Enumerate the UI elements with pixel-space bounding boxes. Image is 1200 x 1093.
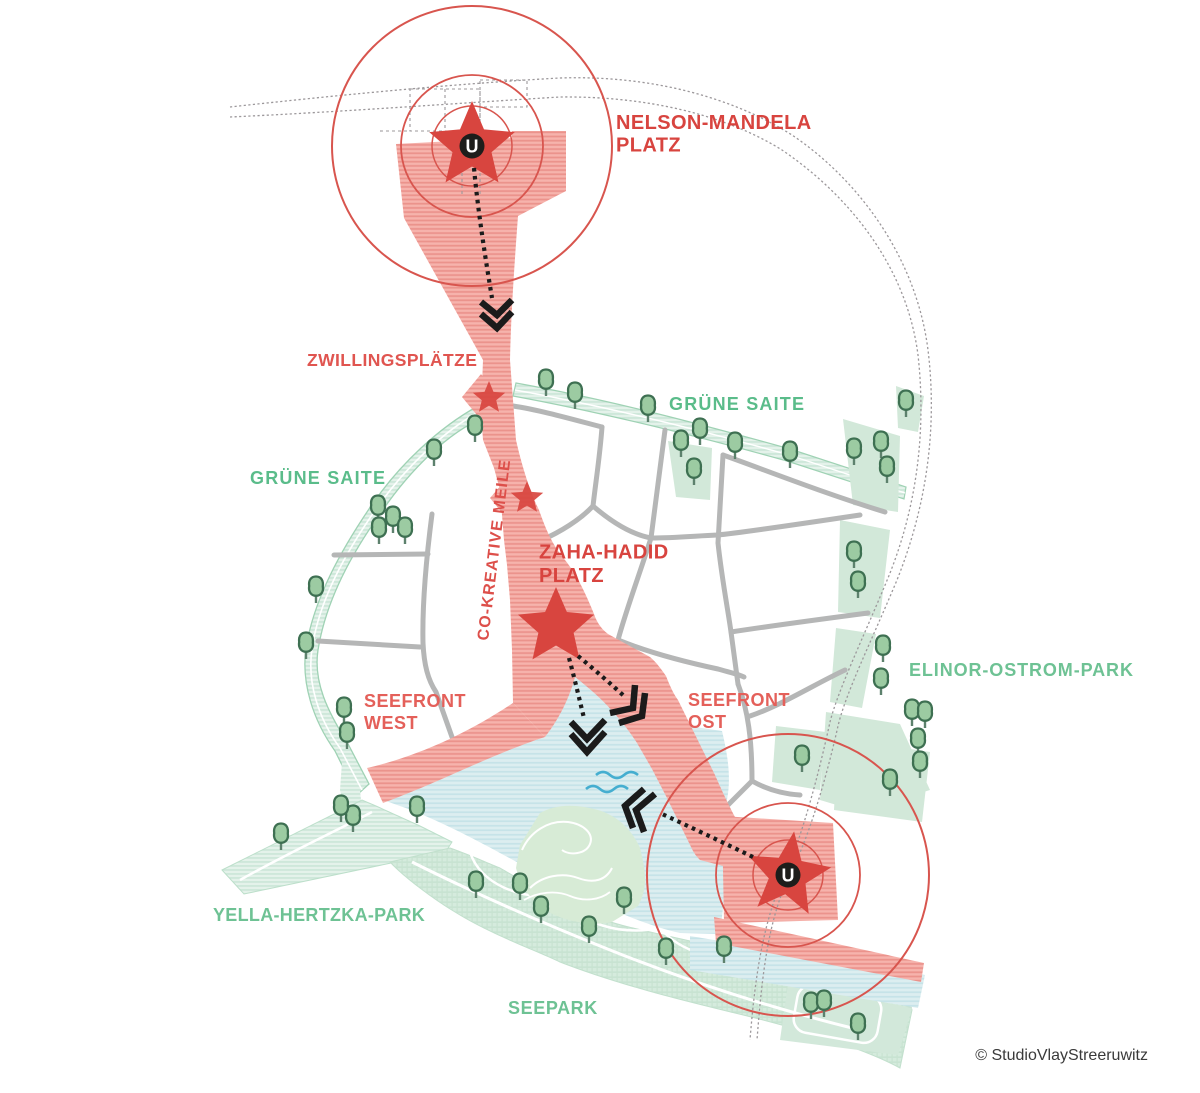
svg-text:WEST: WEST	[364, 713, 418, 733]
svg-text:PLATZ: PLATZ	[616, 135, 681, 157]
svg-text:ELINOR-OSTROM-PARK: ELINOR-OSTROM-PARK	[909, 660, 1134, 680]
svg-text:SEEPARK: SEEPARK	[508, 998, 598, 1018]
svg-text:PLATZ: PLATZ	[539, 565, 604, 587]
svg-text:U: U	[782, 866, 795, 886]
svg-text:NELSON-MANDELA: NELSON-MANDELA	[616, 112, 812, 134]
svg-text:OST: OST	[688, 712, 727, 732]
svg-text:ZAHA-HADID: ZAHA-HADID	[539, 542, 669, 564]
svg-text:SEEFRONT: SEEFRONT	[688, 690, 790, 710]
svg-text:YELLA-HERTZKA-PARK: YELLA-HERTZKA-PARK	[213, 905, 425, 925]
svg-text:U: U	[466, 137, 479, 157]
svg-text:GRÜNE SAITE: GRÜNE SAITE	[250, 468, 386, 488]
svg-text:GRÜNE SAITE: GRÜNE SAITE	[669, 394, 805, 414]
svg-text:© StudioVlayStreeruwitz: © StudioVlayStreeruwitz	[975, 1047, 1148, 1064]
svg-text:SEEFRONT: SEEFRONT	[364, 691, 466, 711]
svg-text:ZWILLINGSPLÄTZE: ZWILLINGSPLÄTZE	[307, 350, 477, 370]
